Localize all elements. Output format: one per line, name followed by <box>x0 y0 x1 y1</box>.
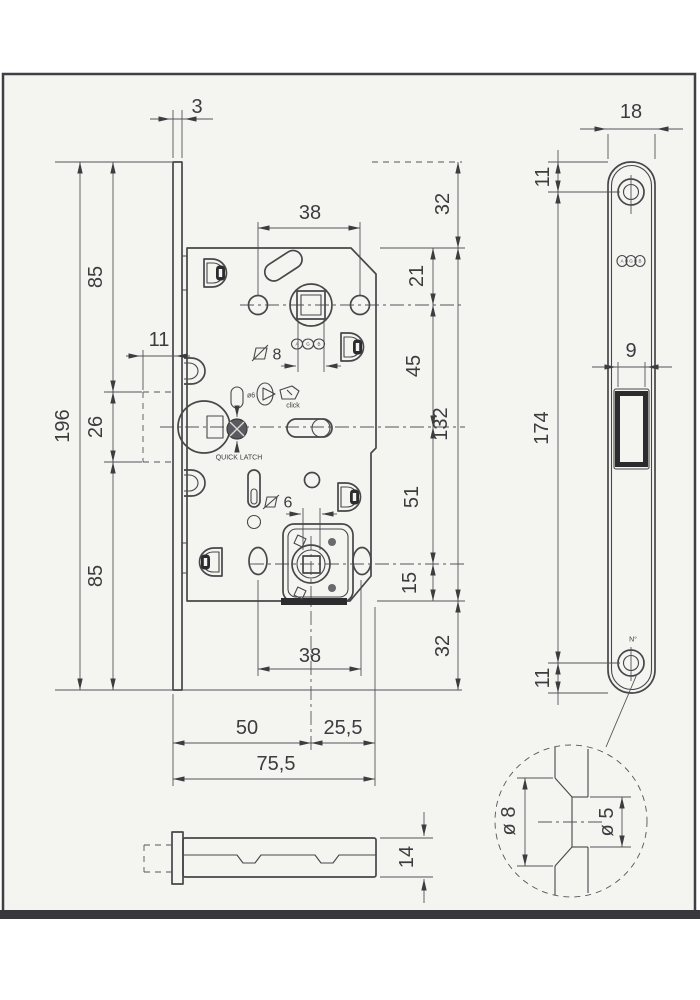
dim-case-depth-14: 14 <box>396 846 418 868</box>
dim-top-hole-offset-11: 11 <box>532 167 554 188</box>
dim-wc-square-6: 6 <box>284 495 293 512</box>
dim-magnet-wc-51: 51 <box>401 486 423 508</box>
dim-spindle-magnet-45: 45 <box>403 355 425 377</box>
dim-faceplate-width-18: 18 <box>620 101 642 123</box>
dim-case-ext-25-5: 25,5 <box>324 717 363 739</box>
dim-window-width-9: 9 <box>625 340 636 362</box>
dim-magnet-depth-11: 11 <box>149 329 170 351</box>
dim-faceplate-thickness: 3 <box>191 96 202 118</box>
scanned-drawing-page: A G B 8 ø6 click QUICK LATC <box>0 0 700 1000</box>
dim-bottom-overhang-32: 32 <box>432 635 454 657</box>
dim-wc-bottom-15: 15 <box>399 572 421 594</box>
technical-drawing: A G B 8 ø6 click QUICK LATC <box>0 0 700 1000</box>
drawing-frame <box>3 74 695 913</box>
dim-screw-centers-174: 174 <box>531 411 553 444</box>
dim-spindle-square-8: 8 <box>273 347 282 364</box>
dim-bottom-hole-spacing: 38 <box>299 645 321 667</box>
dim-overall-height: 196 <box>52 409 74 442</box>
logo-letter: A <box>620 259 623 264</box>
logo-letter: B <box>638 259 641 264</box>
dim-bottom-hole-offset-11: 11 <box>532 668 554 689</box>
label-quick-latch: QUICK LATCH <box>216 455 263 462</box>
dim-case-top-21: 21 <box>406 265 428 287</box>
dim-top-hole-spacing: 38 <box>299 202 321 224</box>
frame-bottom-band <box>0 910 700 919</box>
label-pin-diameter: ø6 <box>247 393 255 400</box>
dim-backset-50: 50 <box>236 717 258 739</box>
logo-letter: A <box>295 342 298 347</box>
label-click: click <box>286 403 300 410</box>
logo-letter: B <box>317 342 320 347</box>
dim-total-75-5: 75,5 <box>257 753 296 775</box>
logo-letter: G <box>306 342 310 347</box>
dim-case-height-132: 132 <box>430 407 452 440</box>
label-number-sign: N° <box>629 636 637 644</box>
logo-letter: G <box>629 259 633 264</box>
dim-lower-85: 85 <box>85 565 107 587</box>
dim-hole-dia-5: ø 5 <box>596 808 618 837</box>
dim-countersink-dia-8: ø 8 <box>498 807 520 836</box>
dim-upper-85: 85 <box>85 266 107 288</box>
dim-top-overhang-32: 32 <box>432 193 454 215</box>
dim-magnet-26: 26 <box>85 416 107 438</box>
